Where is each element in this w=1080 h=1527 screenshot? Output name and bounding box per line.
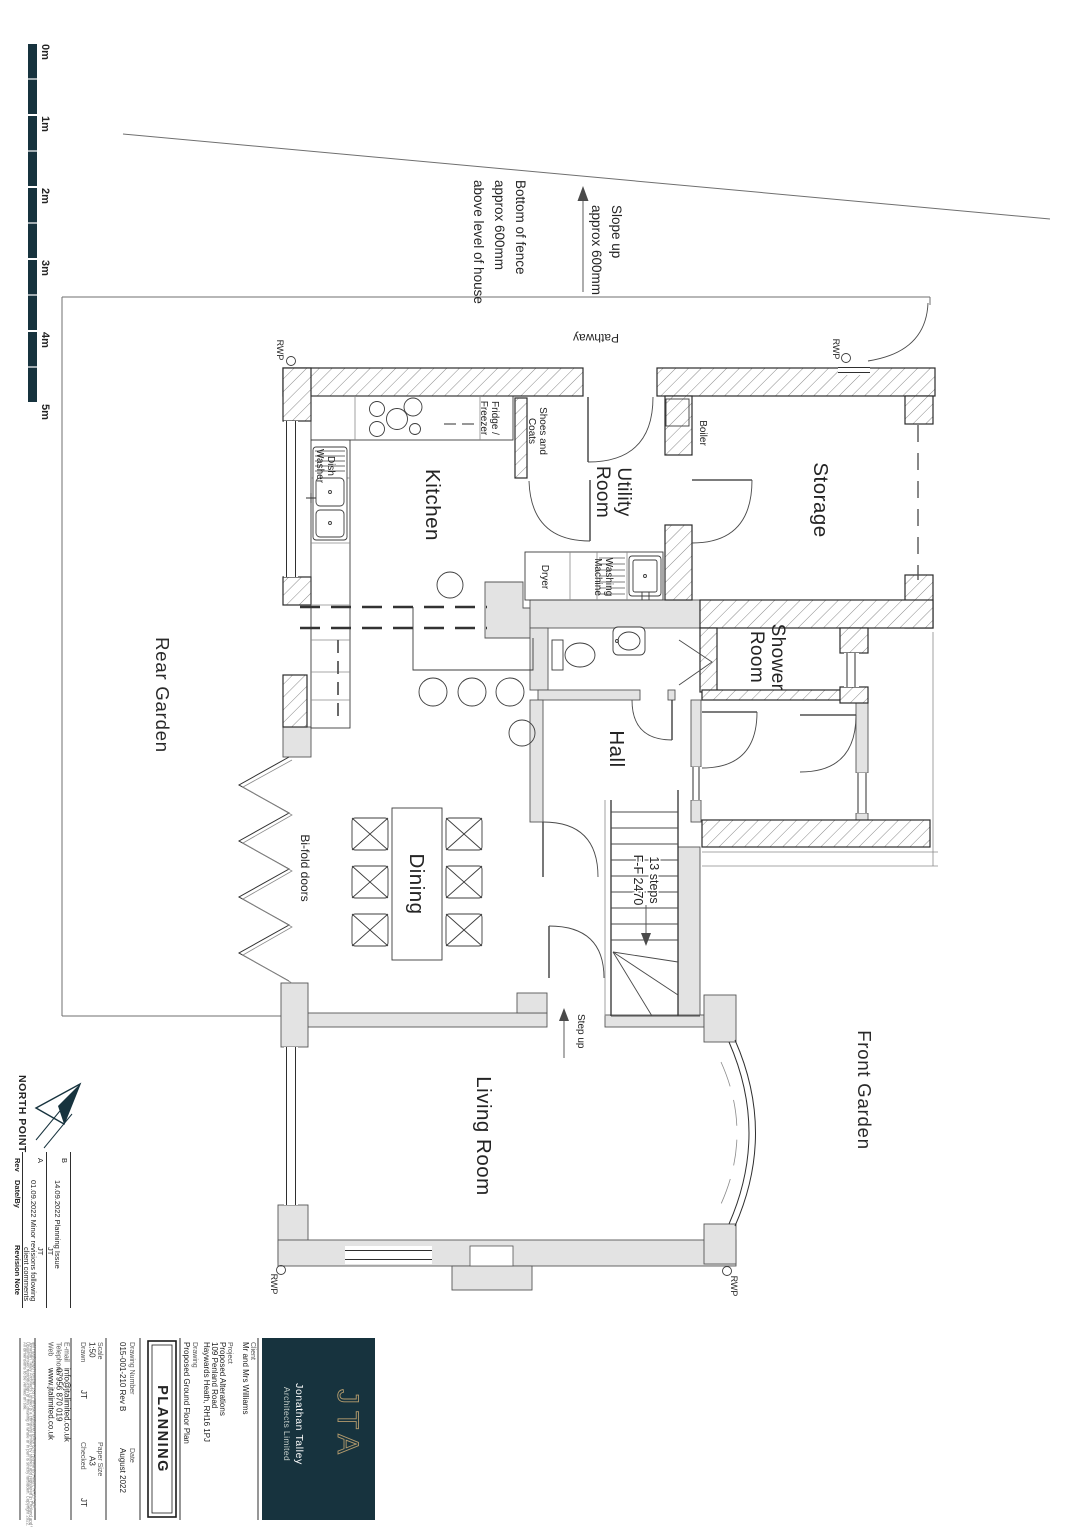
wc-fixtures: [552, 627, 645, 670]
site-boundaries: [62, 134, 1050, 1016]
planning-text: PLANNING: [154, 1385, 170, 1473]
bay-window: [721, 1040, 756, 1226]
planning-stamp: PLANNING: [148, 1341, 176, 1517]
web-value: www.jtalimited.co.uk: [47, 1367, 56, 1441]
scale-value: 1:50: [88, 1342, 97, 1358]
shoes-label-line1: Shoes and: [537, 407, 548, 455]
rwp-label-living-left: RWP: [269, 1274, 279, 1295]
toilet-bowl: [565, 643, 595, 667]
scale-1m: 1m: [39, 116, 51, 132]
hall-label: Hall: [605, 730, 628, 767]
floor-plan-sheet: 0m 1m 2m 3m 4m 5m Bottom of fence approx…: [0, 0, 1080, 1527]
living-label: Living Room: [472, 1076, 495, 1195]
utility-sink: [629, 556, 661, 596]
rwp-label-storage: RWP: [831, 339, 841, 360]
utility-label-line2: Room: [592, 466, 613, 518]
toilet-cistern: [552, 640, 563, 670]
kitchen-fixtures: [300, 396, 535, 746]
shower-label-line2: Room: [746, 631, 767, 683]
email-label: E-mail: [63, 1342, 70, 1362]
step-up: Step up: [559, 1008, 586, 1058]
project-line3: Haywards Heath, RH16 1PJ: [202, 1342, 211, 1442]
fence-note-line2: approx 600mm: [492, 180, 507, 270]
rwp-label-kitchen: RWP: [275, 340, 285, 361]
web-label: Web: [47, 1342, 54, 1356]
garden-gate-arc: [868, 303, 928, 361]
drawing-number-value: 015-001-210 Rev B: [118, 1342, 127, 1411]
dryer-label: Dryer: [539, 565, 550, 590]
bifold-doors: [239, 757, 292, 983]
north-point: NORTH POINT: [16, 1075, 80, 1153]
fixture-labels: Fridge / Freezer Shoes and Coats Boiler …: [298, 401, 708, 902]
stairs-direction-arrow-icon: [641, 933, 651, 946]
hall-window: [690, 767, 702, 800]
step-up-arrow-icon: [559, 1008, 569, 1021]
washing-label-line1: Washing: [603, 558, 614, 597]
stairs-label-line2: F-F 2470: [631, 855, 645, 906]
storage-top-window: [838, 365, 870, 375]
small-print-line4: with registered number 13572 whose regis…: [32, 1342, 37, 1509]
bifold-label: Bi-fold doors: [298, 834, 312, 901]
date-value: August 2022: [118, 1448, 127, 1493]
drawn-label: Drawn: [79, 1342, 86, 1362]
fence-note-line1: Bottom of fence: [513, 180, 528, 275]
rear-garden-label: Rear Garden: [152, 637, 173, 753]
revision-a-line2: client comments: [22, 1247, 31, 1301]
company-logo: JTA Jonathan Talley Architects Limited: [262, 1338, 375, 1520]
title-block: All dimensions to be verified on site. U…: [20, 1338, 375, 1527]
scale-bar: 0m 1m 2m 3m 4m 5m: [28, 44, 51, 420]
scale-0m: 0m: [39, 44, 51, 60]
floor-plan-drawing: 0m 1m 2m 3m 4m 5m Bottom of fence approx…: [0, 0, 1080, 1527]
slope-arrow-icon: [578, 186, 589, 201]
stairs-label-line1: 13 steps: [647, 856, 661, 903]
step-up-label: Step up: [575, 1014, 586, 1049]
fridge-label-line1: Fridge /: [489, 401, 500, 435]
drawing-number-label: Drawing Number: [128, 1342, 135, 1395]
logo-name: Jonathan Talley: [293, 1383, 305, 1465]
dining-label: Dining: [405, 853, 428, 914]
revision-header-dateby: Date/By: [13, 1180, 22, 1209]
checked-label: Checked: [79, 1442, 86, 1470]
client-value: Mr and Mrs Williams: [241, 1342, 250, 1414]
fridge-label-line2: Freezer: [478, 401, 489, 436]
revision-b-rev: B: [60, 1158, 69, 1163]
scale-2m: 2m: [39, 188, 51, 204]
revision-a-rev: A: [36, 1158, 45, 1163]
shoes-label-line2: Coats: [526, 418, 537, 444]
revision-b-by: JT: [46, 1247, 55, 1256]
living-side-window: [284, 1047, 298, 1205]
kitchen-window: [284, 421, 298, 577]
kitchen-label: Kitchen: [421, 469, 444, 541]
revision-b-line: 14.09.2022 Planning Issue: [53, 1180, 62, 1269]
north-point-label: NORTH POINT: [16, 1075, 28, 1153]
north-arrow-icon: [36, 1084, 80, 1124]
drawn-value: JT: [79, 1390, 88, 1399]
boiler-label: Boiler: [697, 420, 708, 446]
shower-window: [844, 653, 859, 687]
pathway-label: Pathway: [573, 331, 619, 345]
slope-note-line1: Slope up: [609, 205, 624, 258]
utility-label-line1: Utility: [613, 467, 634, 516]
dishwasher-label-line1: Dish: [325, 456, 336, 476]
checked-value: JT: [79, 1498, 88, 1507]
rwp-markers: RWP RWP RWP RWP: [269, 339, 851, 1297]
washing-label-line2: Machine: [592, 558, 603, 596]
logo-monogram: JTA: [331, 1389, 364, 1461]
living-front-window: [345, 1246, 432, 1264]
paper-value: A3: [88, 1456, 97, 1466]
lobby-window: [855, 773, 869, 813]
scale-4m: 4m: [39, 332, 51, 348]
revision-table: B 14.09.2022 Planning Issue JT A 01.09.2…: [13, 1152, 71, 1308]
date-label: Date: [128, 1448, 135, 1463]
storage-label: Storage: [809, 462, 832, 537]
shower-label-line1: Shower: [767, 624, 788, 691]
dishwasher-label-line2: Washer: [314, 449, 325, 484]
drawing-value: Proposed Ground Floor Plan: [182, 1342, 191, 1444]
scale-5m: 5m: [39, 404, 51, 420]
fence-note-line3: above level of house: [471, 180, 486, 304]
revision-header-rev: Rev: [13, 1158, 22, 1173]
rwp-label-living-right: RWP: [729, 1276, 739, 1297]
drawing-label: Drawing: [191, 1342, 198, 1368]
logo-subname: Architects Limited: [282, 1387, 292, 1461]
revision-a-by: JT: [36, 1247, 45, 1256]
revision-header-note: Revision Note: [13, 1245, 22, 1295]
scale-3m: 3m: [39, 260, 51, 276]
front-garden-label: Front Garden: [854, 1030, 875, 1150]
slope-note-line2: approx 600mm: [589, 205, 604, 295]
